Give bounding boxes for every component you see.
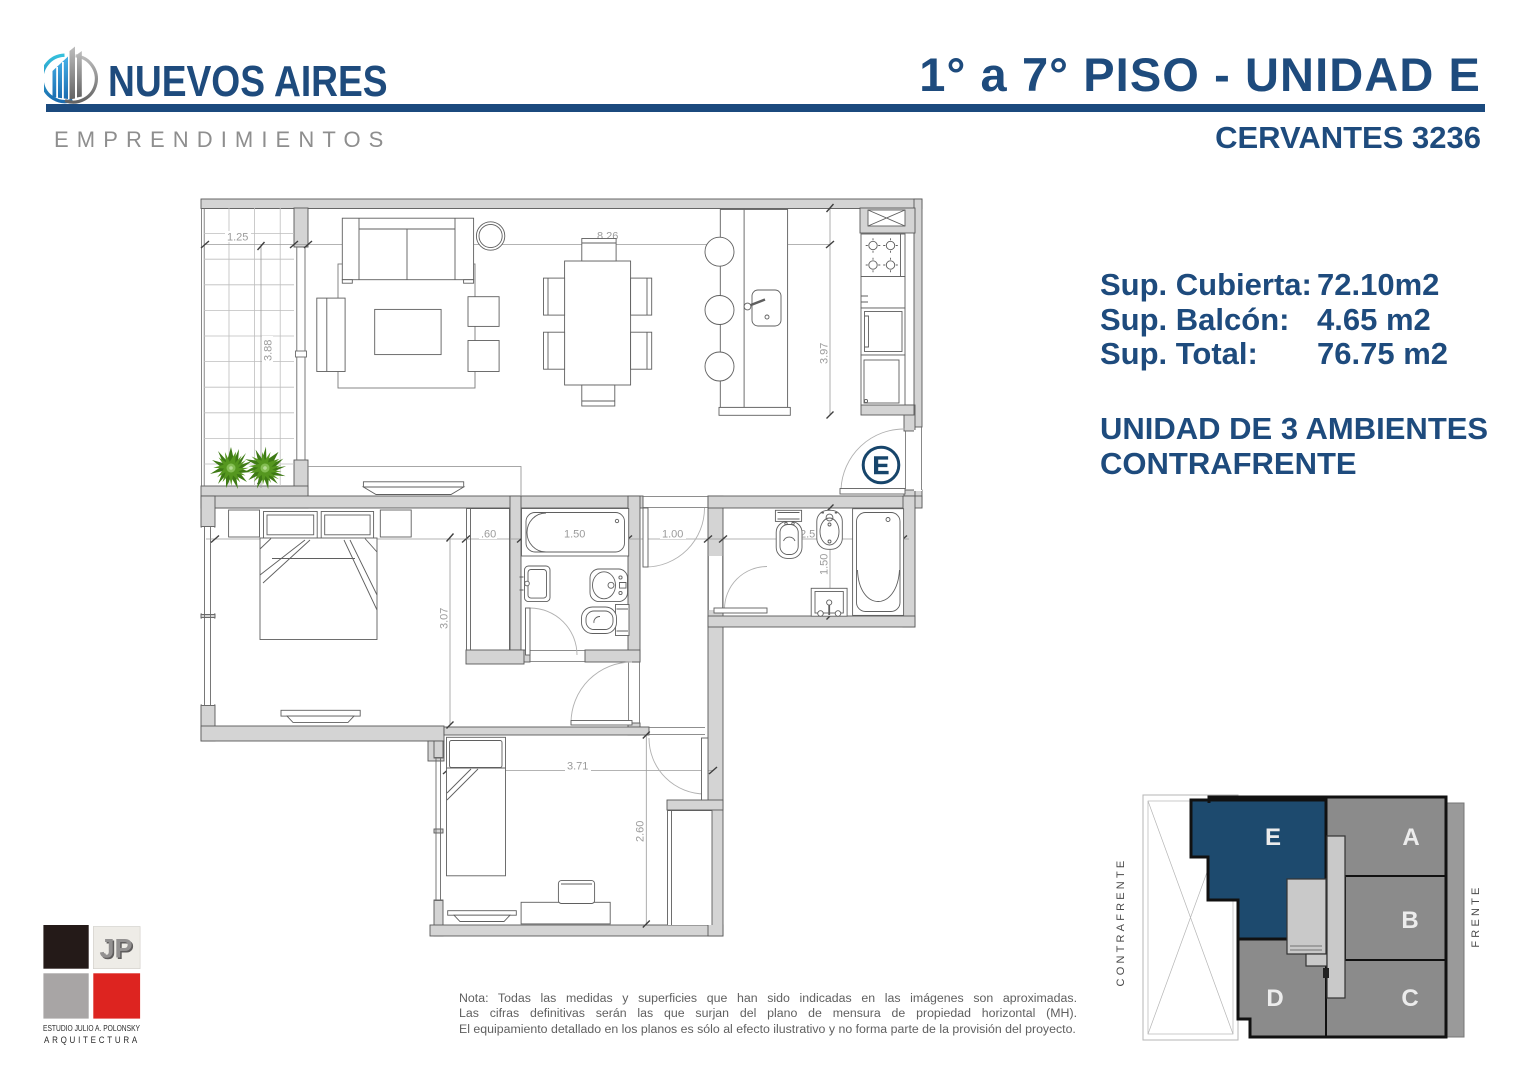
svg-text:ARQUITECTURA: ARQUITECTURA [44, 1035, 140, 1045]
svg-text:ESTUDIO JULIO A. POLONSKY: ESTUDIO JULIO A. POLONSKY [43, 1023, 140, 1033]
svg-text:JP: JP [99, 934, 132, 964]
